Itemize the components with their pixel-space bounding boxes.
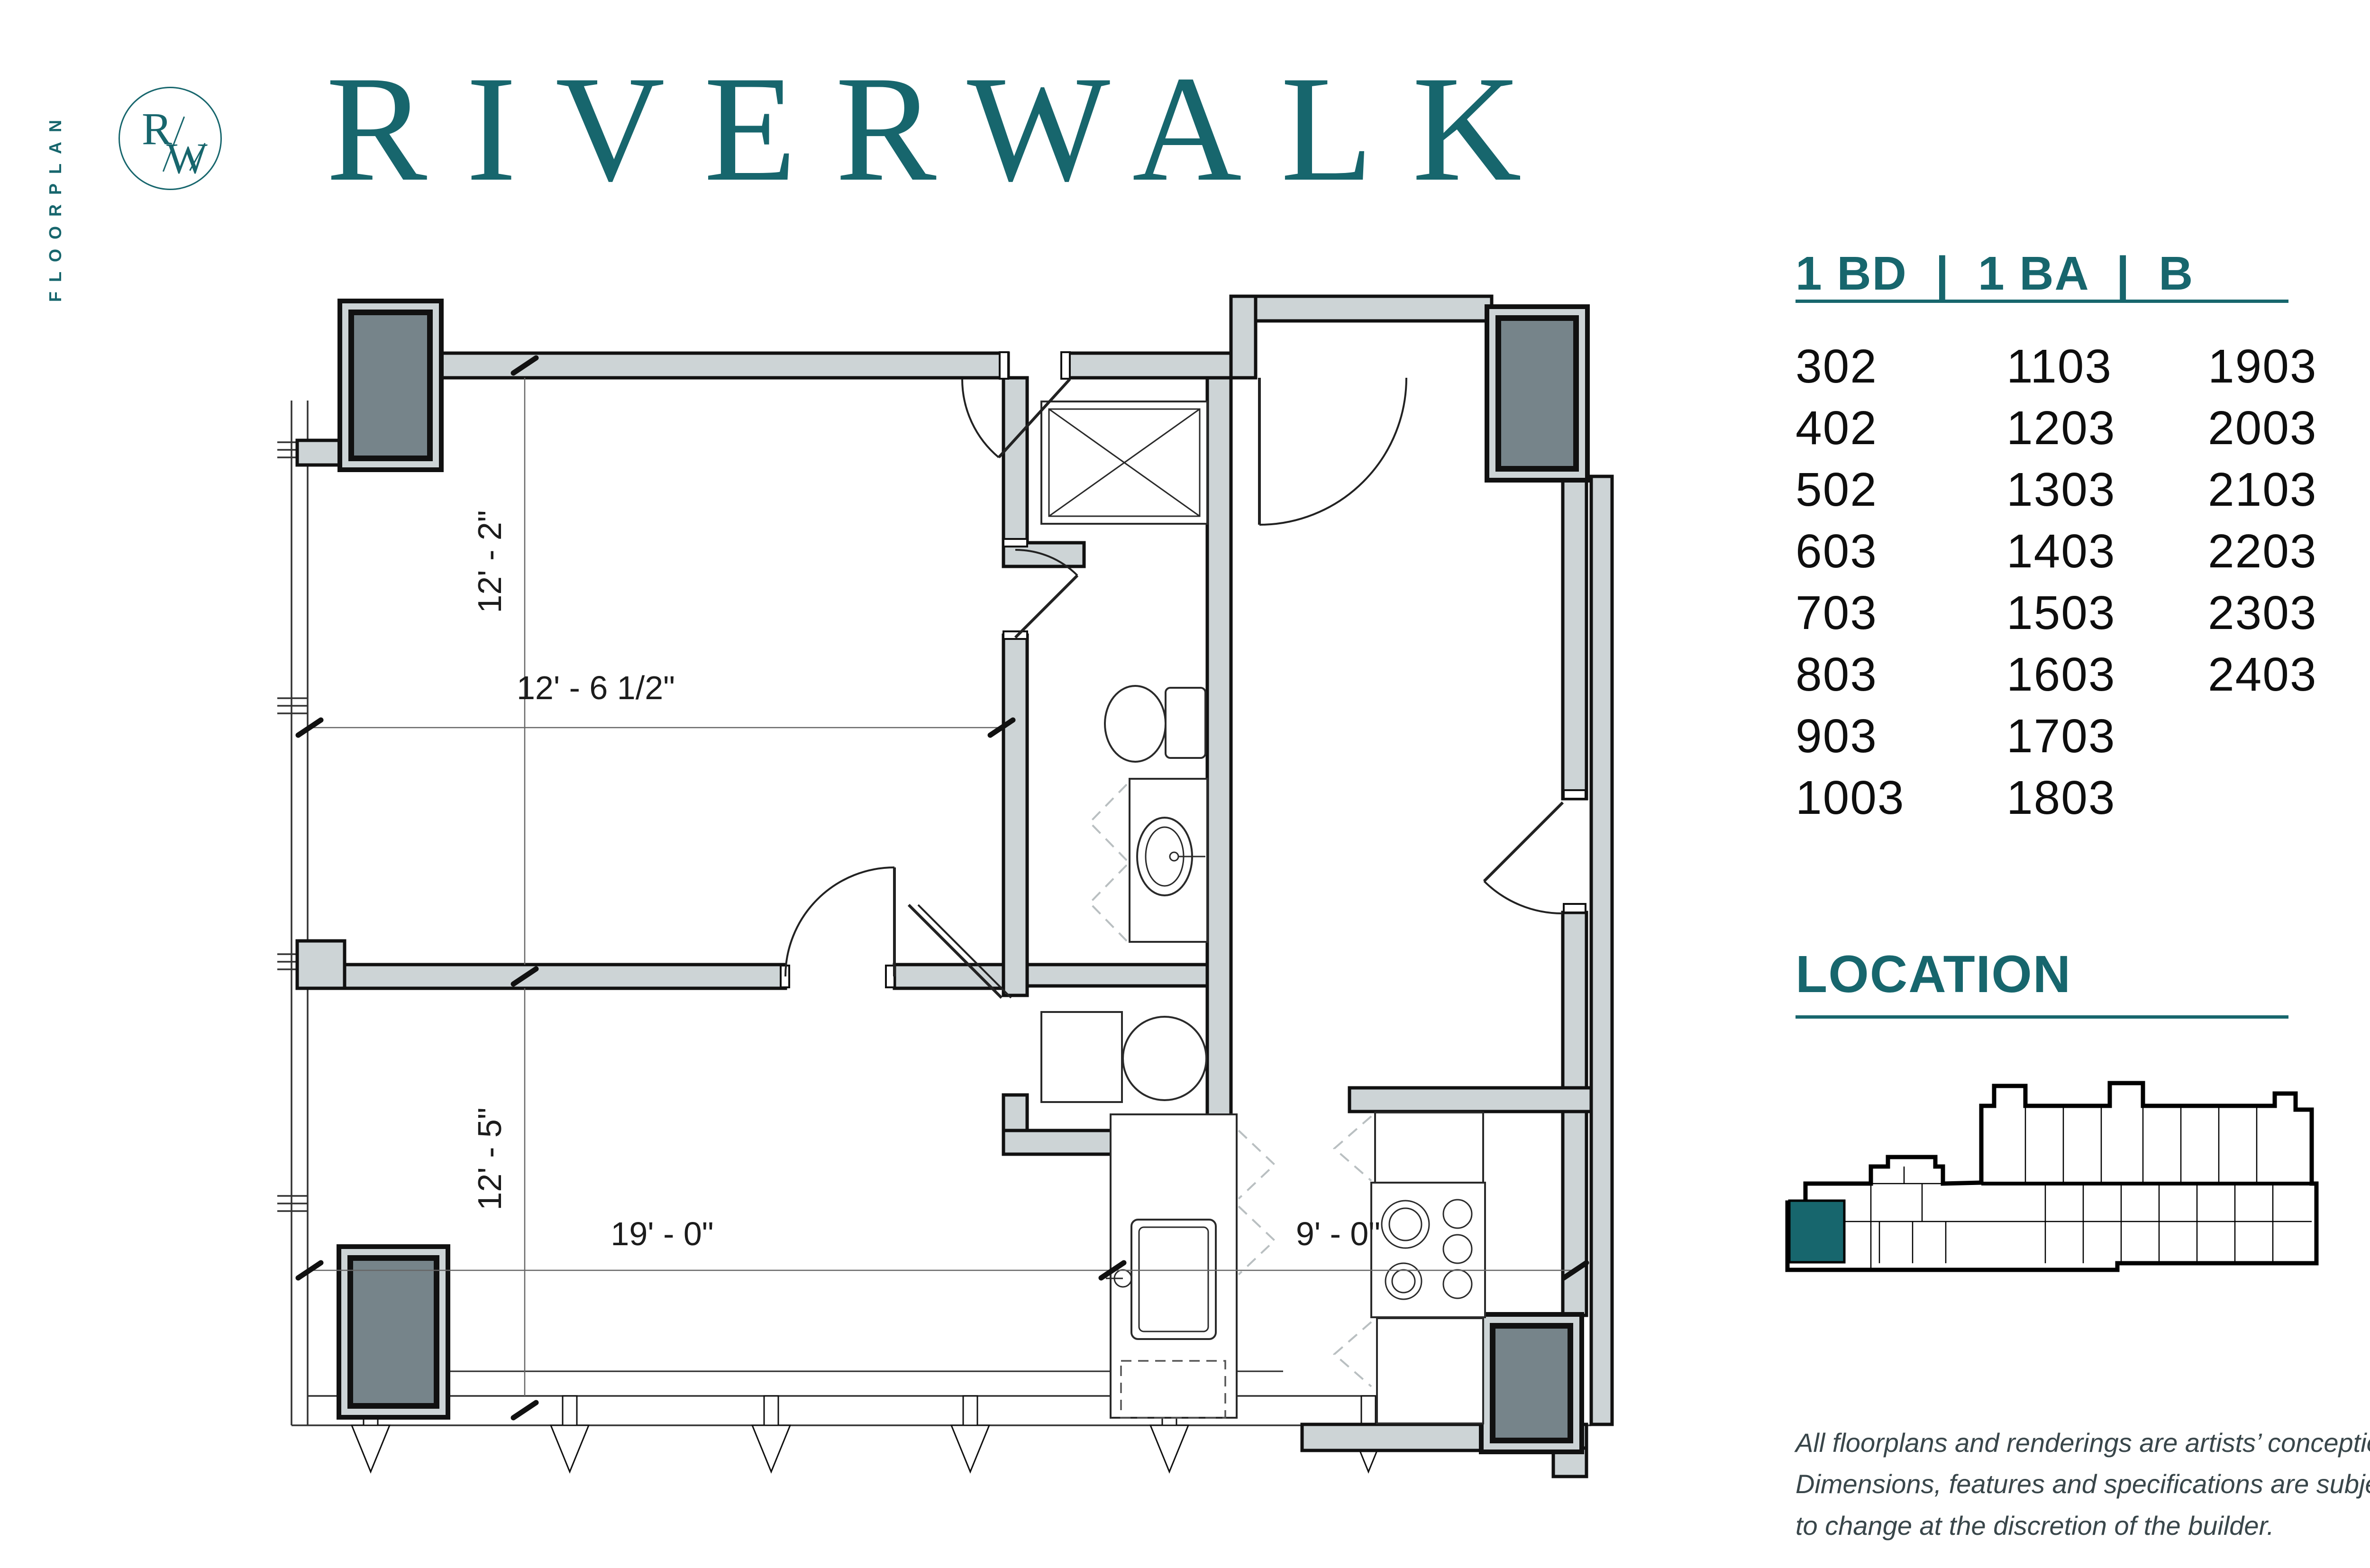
wall-kitchen-east [1563, 1112, 1586, 1315]
toilet-bowl [1105, 686, 1166, 762]
building-key-plan [1780, 1064, 2323, 1292]
unit-number: 1903 [2208, 336, 2317, 397]
unit-number: 1003 [1796, 767, 1905, 829]
unit-number: 1403 [2006, 520, 2115, 582]
page-title: RIVERWALK [294, 53, 1593, 205]
shaft-top-right [1498, 318, 1576, 469]
range [1371, 1183, 1485, 1317]
disclaimer-line: to change at the discretion of the build… [1796, 1505, 2370, 1546]
island-sink [1131, 1220, 1216, 1339]
keyplan-building-outline [1787, 1083, 2316, 1270]
toilet-tank [1166, 688, 1205, 758]
cabinet-swing-dashed [1239, 1130, 1275, 1199]
location-header: LOCATION [1796, 944, 2071, 1004]
shaft-bottom-right [1493, 1326, 1570, 1440]
floorplan-sheet: FLOORPLAN R W RIVERWALK 1 BD | 1 BA | B … [0, 0, 2370, 1568]
unit-header-rule [1796, 300, 2288, 303]
washer [1041, 1012, 1122, 1102]
unit-number: 1103 [2006, 336, 2115, 397]
unit-column: 1103 1203 1303 1403 1503 1603 1703 1803 [2006, 336, 2115, 829]
unit-number: 2303 [2208, 582, 2317, 644]
unit-number: 502 [1796, 459, 1905, 520]
wall-kitchen-north [1349, 1088, 1591, 1112]
wall-bath-laundry-divider [1027, 965, 1207, 986]
wall-bath-west-upper [1003, 378, 1027, 547]
dimension-label-bedroom-width: 12' - 6 1/2" [517, 669, 675, 706]
unit-number: 2403 [2208, 644, 2317, 705]
cabinet-swing-dashed [1334, 1116, 1371, 1181]
unit-number: 1603 [2006, 644, 2115, 705]
refrigerator [1377, 1318, 1483, 1423]
entry-door-arc [1259, 378, 1406, 525]
unit-number: 402 [1796, 397, 1905, 459]
kitchen [1106, 1112, 1485, 1423]
wall-east-inner-lower [1563, 912, 1586, 1112]
unit-number: 903 [1796, 705, 1905, 767]
wall-top-entry [1231, 296, 1492, 321]
wall-bedroom-south [307, 965, 785, 988]
unit-number: 1703 [2006, 705, 2115, 767]
cabinet-swing-dashed [1334, 1322, 1371, 1386]
unit-column: 302 402 502 603 703 803 903 1003 [1796, 336, 1905, 829]
disclaimer-text: All floorplans and renderings are artist… [1796, 1422, 2370, 1546]
bathroom-door-leaf [1015, 575, 1077, 638]
bedroom-door-arc [785, 867, 894, 976]
disclaimer-line: Dimensions, features and specifications … [1796, 1463, 2370, 1504]
wall [297, 440, 340, 465]
wall-top-bath [1064, 353, 1231, 378]
hall-door-arc [1484, 881, 1563, 913]
logo-letter-w: W [166, 137, 208, 180]
disclaimer-line: All floorplans and renderings are artist… [1796, 1422, 2370, 1463]
unit-number: 1803 [2006, 767, 2115, 829]
unit-number: 1203 [2006, 397, 2115, 459]
unit-number: 703 [1796, 582, 1905, 644]
unit-type-header: 1 BD | 1 BA | B [1796, 246, 2194, 301]
dimension-label-bedroom-depth: 12' - 2" [471, 510, 508, 613]
wall-bath-west-lower [1003, 635, 1027, 995]
unit-number: 2003 [2208, 397, 2317, 459]
unit-number: 1303 [2006, 459, 2115, 520]
keyplan-highlighted-unit [1789, 1201, 1844, 1262]
dimension-label-kitchen-width: 9' - 0" [1296, 1215, 1380, 1252]
wall-east-inner-upper [1563, 476, 1586, 799]
unit-floor-plan: 12' - 2" 12' - 6 1/2" 12' - 5" 19' - 0" … [264, 258, 1620, 1500]
bathroom [1041, 401, 1207, 942]
unit-number: 2103 [2208, 459, 2317, 520]
unit-number: 803 [1796, 644, 1905, 705]
wall-jog [1231, 296, 1256, 378]
wall-bath-east [1207, 378, 1231, 1154]
kitchen-cabinet [1375, 1112, 1483, 1183]
wall-east-exterior [1591, 476, 1612, 1424]
cabinet-swing-dashed [1090, 784, 1127, 860]
unit-number: 2203 [2208, 520, 2317, 582]
dryer [1123, 1017, 1206, 1100]
shaft-top-left [351, 312, 430, 458]
closet-door-arc [962, 379, 999, 457]
unit-number: 1503 [2006, 582, 2115, 644]
hall-door-leaf [1484, 802, 1563, 881]
unit-number: 302 [1796, 336, 1905, 397]
window-tick-marks [277, 442, 308, 1211]
unit-column: 1903 2003 2103 2203 2303 2403 [2208, 336, 2317, 705]
location-header-rule [1796, 1015, 2288, 1019]
cabinet-swing-dashed [1239, 1206, 1275, 1275]
wall-step [297, 941, 345, 988]
floorplan-vertical-label: FLOORPLAN [46, 95, 80, 318]
dimension-label-living-width: 19' - 0" [611, 1215, 713, 1252]
unit-number: 603 [1796, 520, 1905, 582]
cabinet-swing-dashed [1090, 865, 1127, 941]
dimension-label-living-depth: 12' - 5" [471, 1107, 508, 1210]
shaft-bottom-left [350, 1258, 437, 1406]
riverwalk-logo: R W [118, 87, 222, 190]
